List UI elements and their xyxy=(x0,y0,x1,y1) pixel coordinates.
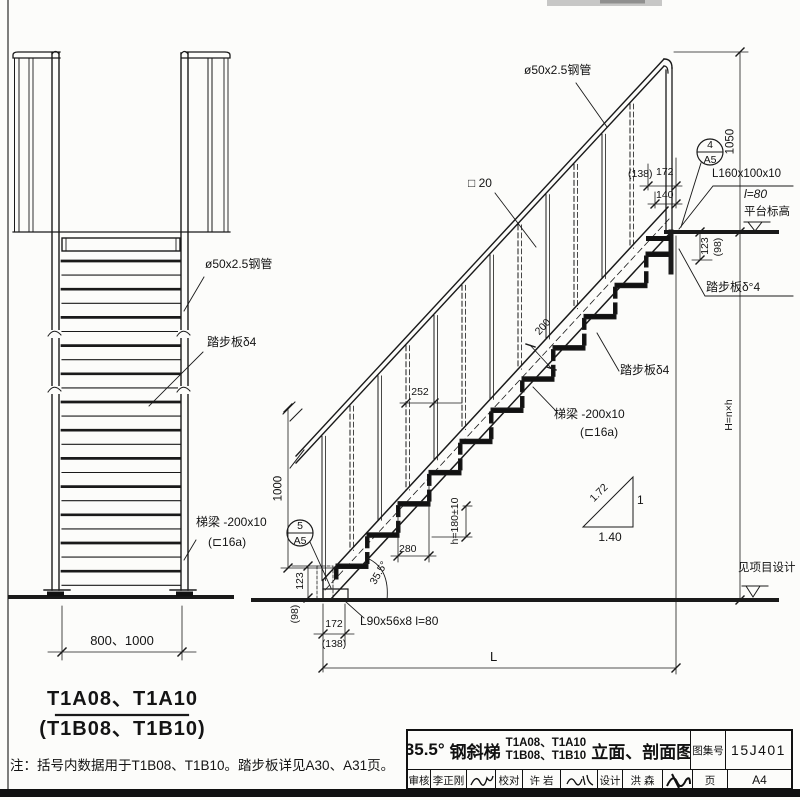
dim-L: L xyxy=(490,650,497,665)
dim-280: 280 xyxy=(399,543,417,555)
dim-1000: 1000 xyxy=(272,472,285,506)
check-signature xyxy=(466,770,495,790)
title-block-row-title: 35.5° 钢斜梯 T1A08、T1A10 T1B08、T1B10 立面、剖面图… xyxy=(408,731,791,770)
dim-H: H=n×h xyxy=(723,389,735,441)
dim-138-bottom: (138) xyxy=(315,638,353,650)
label-pipe-right: ø50x2.5钢管 xyxy=(524,64,591,78)
title-block: 35.5° 钢斜梯 T1A08、T1A10 T1B08、T1B10 立面、剖面图… xyxy=(406,729,793,790)
label-stringer-right-1: 梯梁 -200x10 xyxy=(554,408,625,422)
check-name: 李正刚 xyxy=(430,770,466,790)
slope-vertical: 1 xyxy=(637,494,644,508)
detail-top-number: 4 xyxy=(704,139,716,151)
label-stringer-left-2: (⊏16a) xyxy=(208,536,246,550)
label-tread-top: 踏步板δ°4 xyxy=(706,281,760,295)
dim-172-bottom: 172 xyxy=(319,618,349,630)
proof-label: 校对 xyxy=(495,770,522,790)
design-name: 洪 森 xyxy=(622,770,662,790)
design-signature xyxy=(662,770,692,790)
title-angle: 35.5° xyxy=(408,740,445,760)
detail-bottom-sheet: A5 xyxy=(290,535,310,547)
ground-level-symbol xyxy=(742,586,768,597)
label-platform-level: 平台标高 xyxy=(744,206,790,219)
platform-level-symbol xyxy=(744,222,770,231)
title-block-row-people: 审核 李正刚 校对 许 岩 设计 洪 森 页 A4 xyxy=(408,770,791,790)
check-label: 审核 xyxy=(408,770,430,790)
dim-138-top: (138) xyxy=(628,168,653,180)
dim-1050: 1050 xyxy=(724,126,737,158)
detail-top-sheet: A5 xyxy=(700,154,720,166)
label-baluster: □ 20 xyxy=(468,177,492,191)
left-view-caption-1: T1A08、T1A10 xyxy=(30,688,215,711)
label-angle-conn-1: L160x100x10 xyxy=(712,168,781,181)
proof-name: 许 岩 xyxy=(522,770,560,790)
left-view-treads xyxy=(62,261,180,585)
page-number: A4 xyxy=(727,770,791,790)
dim-width-left-view: 800、1000 xyxy=(90,634,154,649)
dim-140: 140 xyxy=(656,189,674,201)
left-view-caption-2: (T1B08、T1B10) xyxy=(30,718,215,741)
dim-172-top: 172 xyxy=(656,166,674,178)
label-ground-level: 见项目设计 xyxy=(738,562,796,575)
detail-bubble-top xyxy=(681,139,723,227)
label-stringer-right-2: (⊏16a) xyxy=(580,426,618,440)
note-text: 注：括号内数据用于T1B08、T1B10。踏步板详见A30、A31页。 xyxy=(10,758,394,774)
design-label: 设计 xyxy=(597,770,622,790)
atlas-number: 15J401 xyxy=(725,731,791,769)
dim-riser-height: h=180±10 xyxy=(449,489,461,553)
label-angle-conn-2: l=80 xyxy=(744,188,767,202)
dim-98-top: (98) xyxy=(712,233,724,261)
label-tread-left: 踏步板δ4 xyxy=(207,336,256,350)
title-models: T1A08、T1A10 T1B08、T1B10 xyxy=(506,737,587,763)
proof-signature xyxy=(560,770,597,790)
drawing-canvas xyxy=(0,0,800,800)
dim-252: 252 xyxy=(404,386,436,398)
label-base-angle: L90x56x8 l=80 xyxy=(360,615,438,629)
label-pipe-left: ø50x2.5钢管 xyxy=(205,258,272,272)
atlas-label: 图集号 xyxy=(690,731,725,769)
page-label: 页 xyxy=(692,770,727,790)
left-view-linework xyxy=(10,52,232,716)
dim-123-bottom: 123 xyxy=(294,569,306,593)
sheet-bottom-border xyxy=(0,789,800,797)
label-tread-mid: 踏步板δ4 xyxy=(620,364,669,378)
title-suffix: 立面、剖面图 xyxy=(591,738,690,763)
label-stringer-left-1: 梯梁 -200x10 xyxy=(196,516,267,530)
slope-run: 1.40 xyxy=(592,531,628,545)
title-name: 钢斜梯 xyxy=(450,738,501,763)
detail-bottom-number: 5 xyxy=(294,520,306,532)
dim-98-bottom: (98) xyxy=(289,600,301,628)
drawing-sheet: ø50x2.5钢管 踏步板δ4 梯梁 -200x10 (⊏16a) 800、10… xyxy=(0,0,800,800)
dim-123-top: 123 xyxy=(699,234,711,258)
